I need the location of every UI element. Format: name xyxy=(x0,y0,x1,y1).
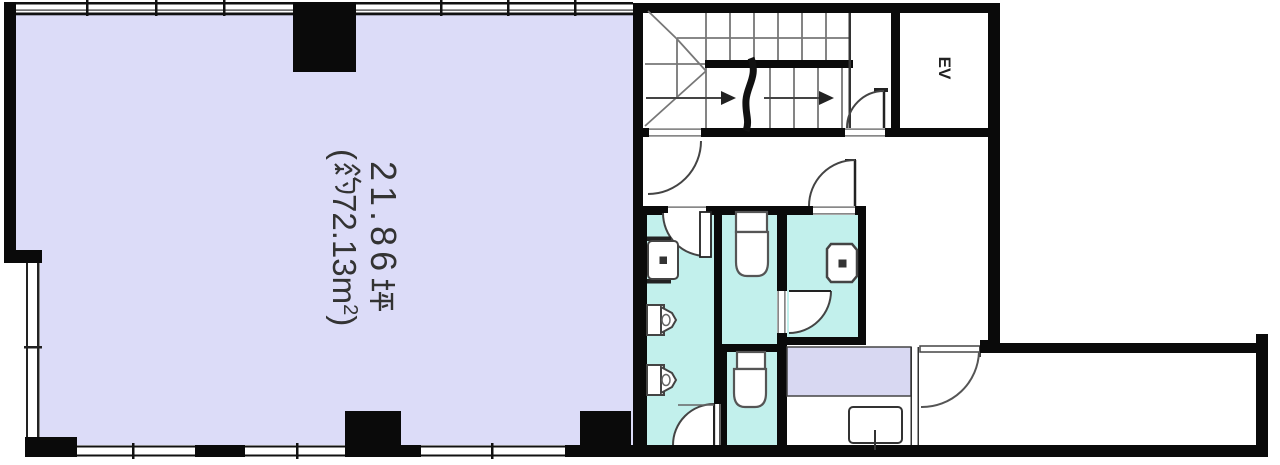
svg-text:EV: EV xyxy=(935,57,954,80)
svg-text:21.86: 21.86 xyxy=(363,161,404,276)
svg-text:(: ( xyxy=(326,149,363,160)
